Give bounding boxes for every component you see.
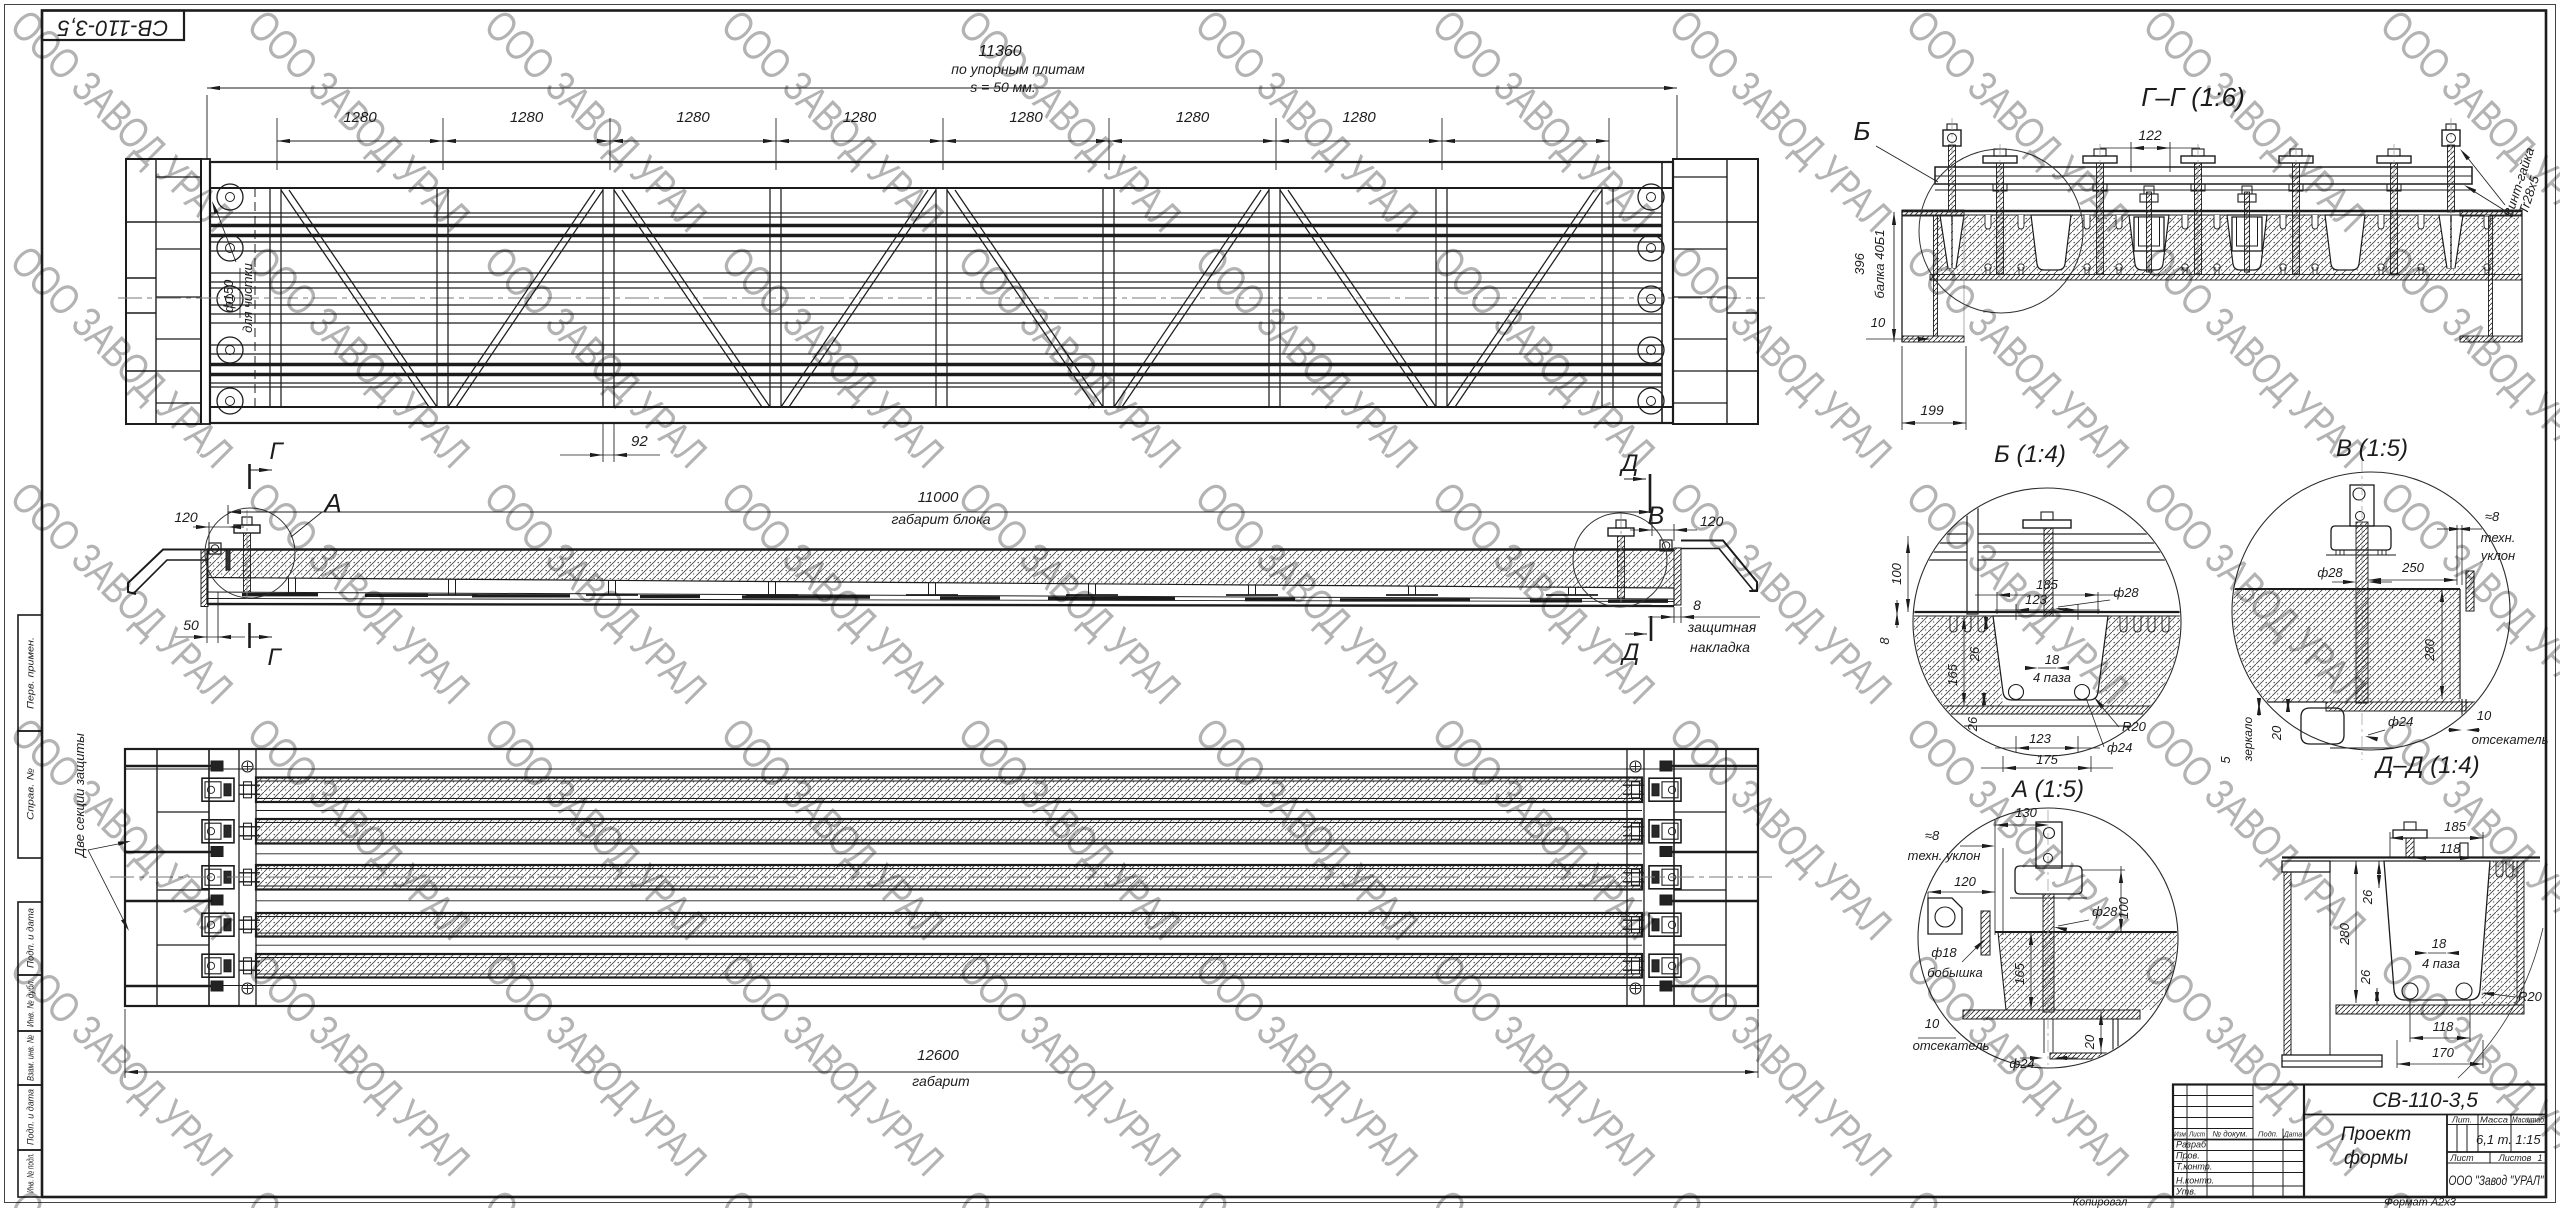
svg-text:122: 122 [2138,127,2162,143]
svg-text:Лист: Лист [2449,1153,2474,1163]
svg-text:ф28: ф28 [2317,565,2343,580]
svg-text:ф28: ф28 [2113,585,2139,600]
svg-text:отсекатель: отсекатель [2472,732,2549,747]
svg-text:Подп. и дата: Подп. и дата [26,1089,37,1145]
svg-text:250: 250 [2401,560,2424,575]
svg-text:Г: Г [267,644,282,671]
svg-text:ООО "Завод "УРАЛ": ООО "Завод "УРАЛ" [2449,1172,2545,1188]
svg-text:Лист: Лист [2188,1132,2205,1139]
svg-text:А: А [322,488,341,518]
svg-text:Листов: Листов [2498,1153,2532,1163]
svg-text:10: 10 [2477,708,2492,723]
svg-text:техн.: техн. [2481,530,2516,545]
svg-text:18: 18 [2432,936,2447,951]
svg-text:175: 175 [2036,752,2058,767]
svg-text:R20: R20 [2518,989,2543,1004]
svg-text:≈8: ≈8 [2485,509,2500,524]
svg-text:100: 100 [1889,562,1904,584]
svg-text:6,1 т.: 6,1 т. [2476,1132,2512,1147]
svg-text:Н.контр.: Н.контр. [2176,1176,2214,1186]
svg-text:Перв. примен.: Перв. примен. [26,637,37,709]
svg-text:Лит.: Лит. [2451,1115,2472,1125]
svg-text:26: 26 [2358,969,2373,985]
svg-text:Т.контр.: Т.контр. [2176,1162,2212,1172]
svg-text:118: 118 [2440,841,2461,856]
svg-text:1280: 1280 [1342,109,1376,126]
svg-text:СВ-110-3,5: СВ-110-3,5 [2372,1089,2478,1112]
svg-text:балка 40Б1: балка 40Б1 [1872,230,1887,299]
svg-text:1280: 1280 [510,109,544,126]
svg-text:Разраб.: Разраб. [2176,1140,2209,1150]
svg-text:Г: Г [269,438,284,465]
svg-text:1280: 1280 [1176,109,1210,126]
svg-text:120: 120 [174,509,198,525]
svg-text:26: 26 [1965,716,1980,732]
svg-text:защитная: защитная [1687,619,1757,635]
svg-text:ф24: ф24 [2107,740,2132,755]
svg-text:Подп.: Подп. [2258,1130,2278,1139]
svg-text:199: 199 [1920,402,1944,418]
svg-text:накладка: накладка [1690,639,1750,655]
svg-text:1280: 1280 [676,109,710,126]
svg-text:№ докум.: № докум. [2212,1130,2247,1139]
svg-text:Взам. инв. №: Взам. инв. № [26,1035,37,1081]
svg-text:165: 165 [1945,663,1960,685]
svg-text:12600: 12600 [917,1047,959,1064]
svg-text:≈8: ≈8 [1925,828,1940,843]
svg-text:зеркало: зеркало [2241,716,2255,762]
svg-text:ф150: ф150 [221,279,236,312]
svg-text:Изм: Изм [2174,1132,2186,1139]
svg-text:R20: R20 [2122,719,2147,734]
svg-text:Масса: Масса [2480,1115,2508,1125]
svg-text:1: 1 [2537,1153,2542,1163]
svg-text:Копировал: Копировал [2073,1197,2128,1208]
svg-text:20: 20 [2082,1034,2097,1050]
svg-text:техн. уклон: техн. уклон [1908,848,1981,863]
svg-text:120: 120 [1954,874,1976,889]
svg-text:165: 165 [2012,962,2027,984]
svg-text:СВ-110-3,5: СВ-110-3,5 [57,16,169,41]
svg-text:123: 123 [2029,731,2051,746]
svg-text:20: 20 [2269,725,2284,741]
svg-text:габарит: габарит [912,1073,970,1089]
svg-text:396: 396 [1852,252,1867,274]
svg-text:Пров.: Пров. [2176,1151,2200,1161]
svg-text:Б (1:4): Б (1:4) [1994,441,2066,468]
svg-text:280: 280 [2422,638,2437,661]
svg-text:Б: Б [1854,116,1871,146]
svg-text:8: 8 [1877,637,1892,645]
svg-text:26: 26 [1967,646,1982,662]
svg-text:8: 8 [1693,597,1701,613]
svg-text:10: 10 [1871,315,1886,330]
